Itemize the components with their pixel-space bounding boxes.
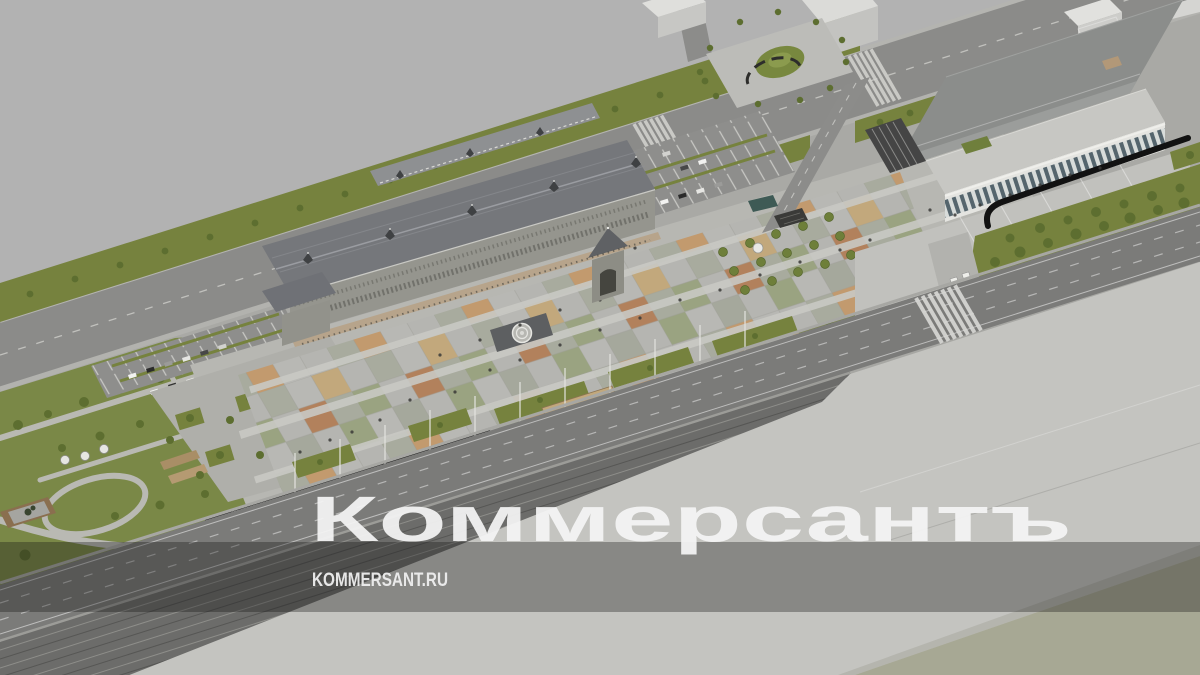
site-plan-render: Коммерсантъ KOMMERSANT.RU (0, 0, 1200, 675)
news-photo-architectural-render: Коммерсантъ KOMMERSANT.RU (0, 0, 1200, 675)
kommersant-logo-text: Коммерсантъ (310, 483, 1072, 555)
round-pavilion (753, 243, 763, 253)
kommersant-site-text: KOMMERSANT.RU (312, 570, 448, 591)
